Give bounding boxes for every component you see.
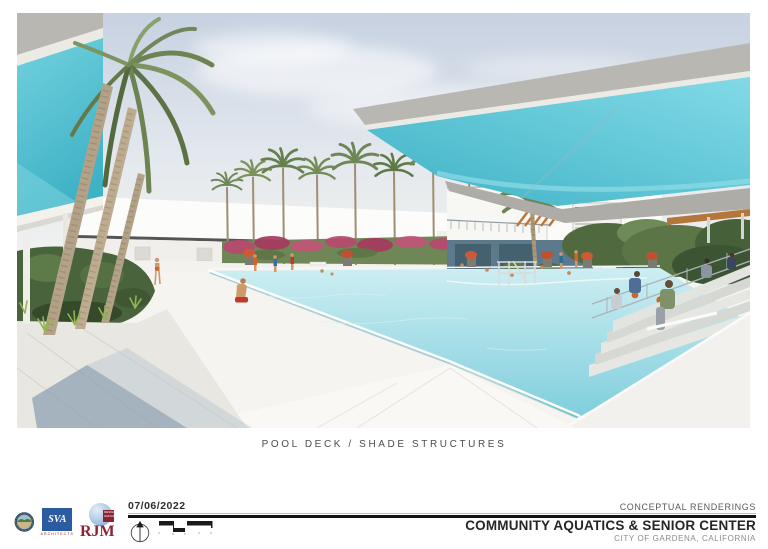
title-block: SVA ARCHITECTS DESIGN GROUP RJM 07/06/20… [14, 500, 756, 544]
rendering-caption: POOL DECK / SHADE STRUCTURES [0, 439, 768, 450]
sva-logo-mark: SVA [42, 508, 72, 531]
title-block-rules: 07/06/2022 CONCEPTUAL RENDERINGS [128, 500, 756, 544]
north-arrow-icon [128, 520, 152, 544]
scale-bar-icon [158, 520, 216, 536]
city-of-gardena-seal [14, 504, 35, 540]
rendering-scene [17, 13, 750, 428]
sva-logo-tagline: ARCHITECTS [41, 532, 74, 536]
rendering-pool-deck [17, 13, 750, 428]
project-location: CITY OF GARDENA, CALIFORNIA [465, 534, 756, 543]
sva-architects-logo: SVA ARCHITECTS [41, 508, 74, 536]
series-label: CONCEPTUAL RENDERINGS [620, 502, 756, 512]
rjm-logo-tagline: DESIGN GROUP [103, 510, 114, 522]
rjm-logo-mark: RJM [80, 523, 115, 541]
issue-date: 07/06/2022 [128, 500, 186, 512]
project-title: COMMUNITY AQUATICS & SENIOR CENTER [465, 519, 756, 533]
logo-row: SVA ARCHITECTS DESIGN GROUP RJM [14, 501, 120, 543]
bench [310, 262, 326, 265]
rjm-design-group-logo: DESIGN GROUP RJM [80, 501, 120, 543]
